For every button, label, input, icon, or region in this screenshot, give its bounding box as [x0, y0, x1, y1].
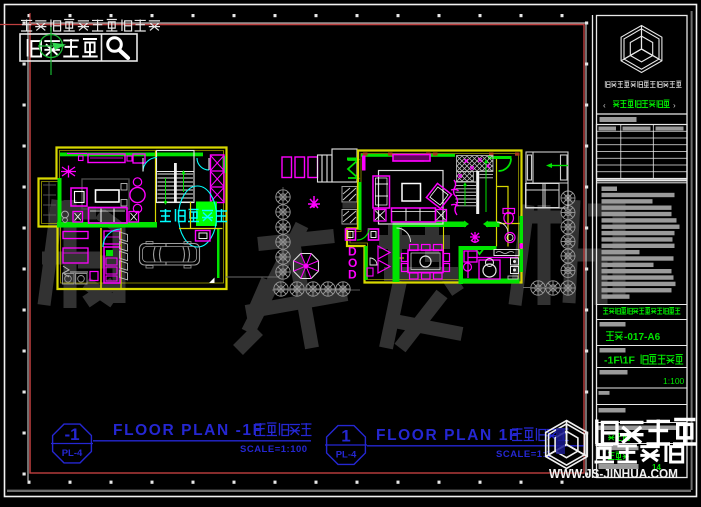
svg-text:›: › [673, 101, 676, 110]
svg-text:PL-4: PL-4 [62, 448, 83, 459]
svg-text:-017-A6: -017-A6 [624, 332, 661, 343]
svg-text:FLOOR PLAN 1F: FLOOR PLAN 1F [376, 427, 520, 444]
svg-text:SCALE=1:1: SCALE=1:1 [496, 449, 552, 460]
svg-text:1:100: 1:100 [663, 376, 685, 386]
svg-text:PL-4: PL-4 [336, 450, 357, 461]
svg-text:FLOOR PLAN -1F: FLOOR PLAN -1F [113, 422, 264, 439]
svg-text:1: 1 [341, 427, 350, 446]
svg-text:-1: -1 [64, 425, 79, 444]
svg-text:SCALE=1:100: SCALE=1:100 [240, 444, 308, 455]
svg-text:‹: ‹ [603, 101, 606, 110]
svg-text:WWW.JS-JINHUA.COM: WWW.JS-JINHUA.COM [549, 467, 678, 481]
svg-text:-1F\1F: -1F\1F [604, 355, 636, 367]
svg-text:D: D [348, 268, 357, 282]
